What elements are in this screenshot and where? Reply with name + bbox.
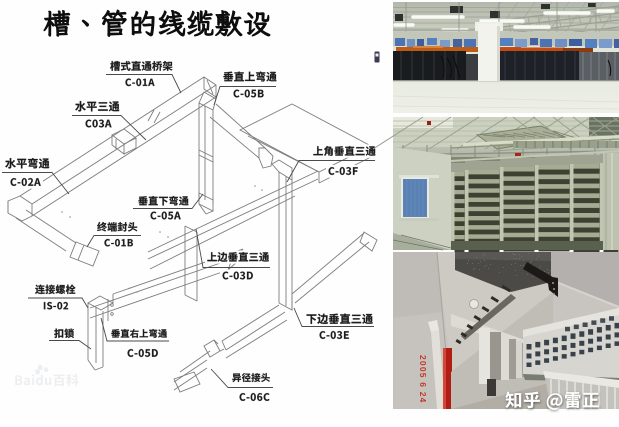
- svg-text:2005 6 24: 2005 6 24: [418, 355, 428, 404]
